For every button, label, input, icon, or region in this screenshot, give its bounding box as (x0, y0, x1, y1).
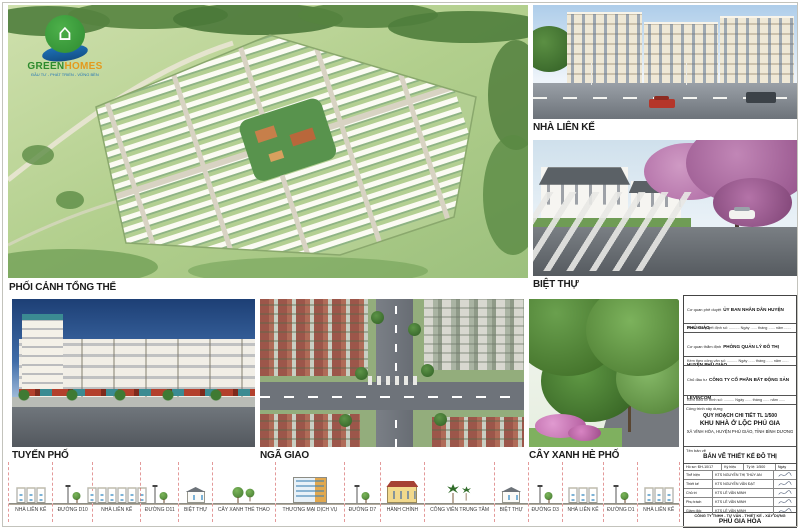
elevation-segment: NHÀ LIÊN KẾ (562, 462, 604, 522)
signature-table-header: Hồ sơ: ĐH-10/17Ký hiệuTỷ lệ: 1/500Ngày (684, 464, 796, 471)
villa-render (533, 140, 797, 276)
elevation-label: NHÀ LIÊN KẾ (563, 507, 604, 514)
townhouse-elevation-shape (107, 487, 116, 503)
tree-shape (371, 311, 384, 324)
decision-line: Kèm theo quyết định số: .......... Ngày … (684, 324, 796, 333)
greenery-label: CÂY XANH HÈ PHỐ (529, 450, 619, 461)
signature-header-cell: Hồ sơ: ĐH-10/17 (684, 464, 722, 470)
signature-name: KTS NGUYỄN VĂN ĐẠT (713, 480, 773, 488)
signature-mark (774, 489, 796, 497)
villa-elevation-shape (502, 491, 520, 503)
project-label: Công trình xây dựng (686, 406, 792, 411)
tree-shape (362, 492, 370, 503)
townhouse-elevation-shape (16, 487, 25, 503)
signature-table: Hồ sơ: ĐH-10/17Ký hiệuTỷ lệ: 1/500NgàyTh… (684, 464, 796, 513)
elevation-label: NHÀ LIÊN KẾ (93, 507, 141, 514)
signature-role: Thể hiện (684, 471, 713, 479)
facade-block (644, 22, 718, 83)
crosswalk-shape (368, 376, 421, 385)
signature-header-cell: Tỷ lệ: 1/500 (744, 464, 775, 470)
signature-mark (774, 480, 796, 488)
corner-tower-shape (22, 314, 63, 400)
signature-name: KTS NGUYỄN THỊ THÚY AN (713, 471, 773, 479)
street-trees-shape (12, 388, 255, 409)
facade-block (720, 16, 794, 82)
signature-mark (774, 498, 796, 506)
red-car-shape (649, 99, 675, 108)
elevation-label: BIỆT THỰ (179, 507, 212, 514)
signature-row: Thiết kếKTS NGUYỄN VĂN ĐẠT (684, 480, 796, 489)
street-lamp-shape (355, 485, 361, 503)
elevation-segment: BIỆT THỰ (178, 462, 212, 522)
signature-mark (774, 471, 796, 479)
logo-mark: ⌂ (42, 15, 88, 61)
appraisal-row: Cơ quan thẩm địnhPHÒNG QUẢN LÝ ĐÔ THỊ HU… (684, 333, 796, 357)
townhouse-elevation-shape (579, 487, 588, 503)
elevation-segment: BIỆT THỰ (494, 462, 528, 522)
townhouse-elevation-shape (127, 487, 136, 503)
tree-shape (421, 364, 434, 377)
dark-car-shape (746, 92, 776, 103)
design-company-row: CÔNG TY TNHH - TƯ VẤN - THIẾT KẾ - XÂY D… (684, 513, 796, 527)
townhouse-facades (567, 12, 794, 83)
drawing-value: BẢN VẼ THIẾT KẾ ĐÔ THỊ (686, 454, 794, 460)
horizontal-road-shape (260, 382, 524, 410)
elevation-segment: NHÀ LIÊN KẾ (92, 462, 141, 522)
street-lamp-shape (538, 485, 544, 503)
elevation-segment: ĐƯỜNG D11 (140, 462, 178, 522)
elevation-label: ĐƯỜNG D3 (529, 507, 562, 514)
townhouse-elevation-shape (117, 487, 126, 503)
street-elevation-strip: NHÀ LIÊN KẾĐƯỜNG D10NHÀ LIÊN KẾĐƯỜNG D11… (8, 462, 680, 522)
tree-shape (159, 492, 167, 503)
street-label: TUYẾN PHỐ (12, 450, 69, 461)
signature-name: KTS LÊ VĂN MINH (713, 498, 773, 506)
elevation-label: HÀNH CHÍNH (381, 507, 425, 514)
presentation-board: ⌂ GREENHOMES ĐẦU TƯ - PHÁT TRIỂN - VỮNG … (0, 0, 800, 529)
signature-header-cell: Ký hiệu (722, 464, 744, 470)
signature-name: KTS LÊ VĂN MINH (713, 489, 773, 497)
palm-tree-shape (462, 486, 471, 500)
document-line: Kèm theo công văn số: .......... Ngày ..… (684, 357, 796, 366)
facade-block (567, 12, 641, 83)
elevation-label: ĐƯỜNG D7 (345, 507, 379, 514)
signature-role: Phụ trách (684, 498, 713, 506)
appraisal-label: Cơ quan thẩm định (687, 344, 721, 349)
pink-shrub-shape (568, 425, 601, 441)
project-plan-type: QUY HOẠCH CHI TIẾT TL 1/500 (686, 413, 794, 419)
administrative-building-elevation-shape (387, 486, 417, 503)
title-block: Cơ quan phê duyệtỦY BAN NHÂN DÂN HUYỆN P… (683, 295, 797, 528)
elevation-segment: HÀNH CHÍNH (380, 462, 425, 522)
signature-row: Phụ tráchKTS LÊ VĂN MINH (684, 498, 796, 507)
logo-word-homes: HOMES (64, 61, 102, 72)
elevation-label: ĐƯỜNG D10 (53, 507, 91, 514)
elevation-label: CÂY XANH THỂ THAO (213, 507, 275, 514)
signature-row: Chủ trìKTS LÊ VĂN MINH (684, 489, 796, 498)
elevation-label: ĐƯỜNG D11 (141, 507, 178, 514)
street-lamp-shape (152, 485, 158, 503)
logo-tagline: ĐẦU TƯ - PHÁT TRIỂN - VỮNG BỀN (22, 72, 108, 77)
elevation-label: NHÀ LIÊN KẾ (9, 507, 52, 514)
drawing-name-row: Tên bản vẽ BẢN VẼ THIẾT KẾ ĐÔ THỊ (684, 447, 796, 464)
green-homes-logo: ⌂ GREENHOMES ĐẦU TƯ - PHÁT TRIỂN - VỮNG … (22, 15, 108, 77)
project-name: KHU NHÀ Ở LỘC PHÚ GIA (686, 420, 794, 427)
elevation-segment: NHÀ LIÊN KẾ (8, 462, 52, 522)
tree-shape (245, 489, 254, 502)
elevation-segment: ĐƯỜNG D3 (528, 462, 562, 522)
company-name: PHÚ GIA HÒA (684, 518, 796, 525)
palm-tree-shape (447, 484, 459, 503)
tree-shape (408, 323, 421, 336)
elevation-label: NHÀ LIÊN KẾ (638, 507, 679, 514)
overall-perspective-render: ⌂ GREENHOMES ĐẦU TƯ - PHÁT TRIỂN - VỮNG … (8, 5, 528, 278)
elevation-segment: CÔNG VIÊN TRUNG TÂM (424, 462, 494, 522)
elevation-label: ĐƯỜNG D1 (604, 507, 637, 514)
overall-perspective-label: PHỐI CẢNH TỔNG THỂ (9, 282, 116, 293)
tree-shape (620, 492, 628, 503)
block-rooftops-shape (424, 299, 524, 370)
house-icon: ⌂ (45, 16, 85, 52)
elevation-label: CÔNG VIÊN TRUNG TÂM (425, 507, 494, 514)
block-rooftops-shape (260, 299, 368, 376)
townhouse-elevation-shape (654, 487, 663, 503)
road-shape (12, 407, 255, 447)
intersection-render (260, 299, 524, 447)
commercial-building-elevation-shape (293, 477, 327, 503)
investor-row: Chủ đầu tưCÔNG TY CỔ PHẦN BẤT ĐỘNG SẢN L… (684, 366, 796, 396)
submission-line: Kèm theo tờ trình số: .......... Ngày ..… (684, 396, 796, 405)
elevation-segment: ĐƯỜNG D7 (344, 462, 379, 522)
street-lamp-shape (613, 485, 619, 503)
flowering-tree-shape (713, 178, 792, 227)
townhouse-elevation-shape (589, 487, 598, 503)
tree-shape (355, 367, 368, 380)
greenery-render (529, 299, 679, 447)
intersection-label: NGÃ GIAO (260, 450, 309, 461)
elevation-segment: THƯƠNG MẠI DỊCH VỤ (275, 462, 345, 522)
tree-shape (232, 487, 243, 503)
street-lamp-shape (591, 63, 592, 85)
townhouse-elevation-shape (644, 487, 653, 503)
elevation-segment: ĐƯỜNG D1 (603, 462, 637, 522)
white-car-shape (729, 210, 755, 219)
townhouse-elevation-shape (26, 487, 35, 503)
signature-role: Thiết kế (684, 480, 713, 488)
villa-elevation-shape (187, 491, 205, 503)
tree-shape (72, 492, 80, 503)
investor-label: Chủ đầu tư (687, 377, 707, 382)
signature-role: Chủ trì (684, 489, 713, 497)
signature-header-cell: Ngày (776, 464, 796, 470)
townhouse-elevation-shape (664, 487, 673, 503)
logo-word-green: GREEN (27, 61, 64, 72)
drawing-label: Tên bản vẽ (686, 448, 792, 453)
approval-label: Cơ quan phê duyệt (687, 307, 721, 312)
elevation-segment: ĐƯỜNG D10 (52, 462, 91, 522)
project-row: Công trình xây dựng QUY HOẠCH CHI TIẾT T… (684, 405, 796, 447)
elevation-label: THƯƠNG MẠI DỊCH VỤ (276, 507, 345, 514)
elevation-segment: CÂY XANH THỂ THAO (212, 462, 275, 522)
townhouse-render (533, 5, 797, 119)
townhouse-label: NHÀ LIÊN KẾ (533, 122, 595, 133)
townhouse-elevation-shape (87, 487, 96, 503)
signature-row: Thể hiệnKTS NGUYỄN THỊ THÚY AN (684, 471, 796, 480)
project-location: XÃ VĨNH HÒA, HUYỆN PHÚ GIÁO, TỈNH BÌNH D… (686, 429, 794, 434)
elevation-segment: NHÀ LIÊN KẾ (637, 462, 680, 522)
logo-wordmark: GREENHOMES (22, 61, 108, 72)
townhouse-elevation-shape (569, 487, 578, 503)
villa-label: BIỆT THỰ (533, 279, 579, 290)
street-lamp-shape (686, 63, 687, 85)
street-render (12, 299, 255, 447)
street-lamp-shape (65, 485, 71, 503)
townhouse-elevation-shape (36, 487, 45, 503)
elevation-label: BIỆT THỰ (495, 507, 528, 514)
approval-row: Cơ quan phê duyệtỦY BAN NHÂN DÂN HUYỆN P… (684, 296, 796, 324)
townhouse-elevation-shape (97, 487, 106, 503)
tree-shape (545, 492, 553, 503)
